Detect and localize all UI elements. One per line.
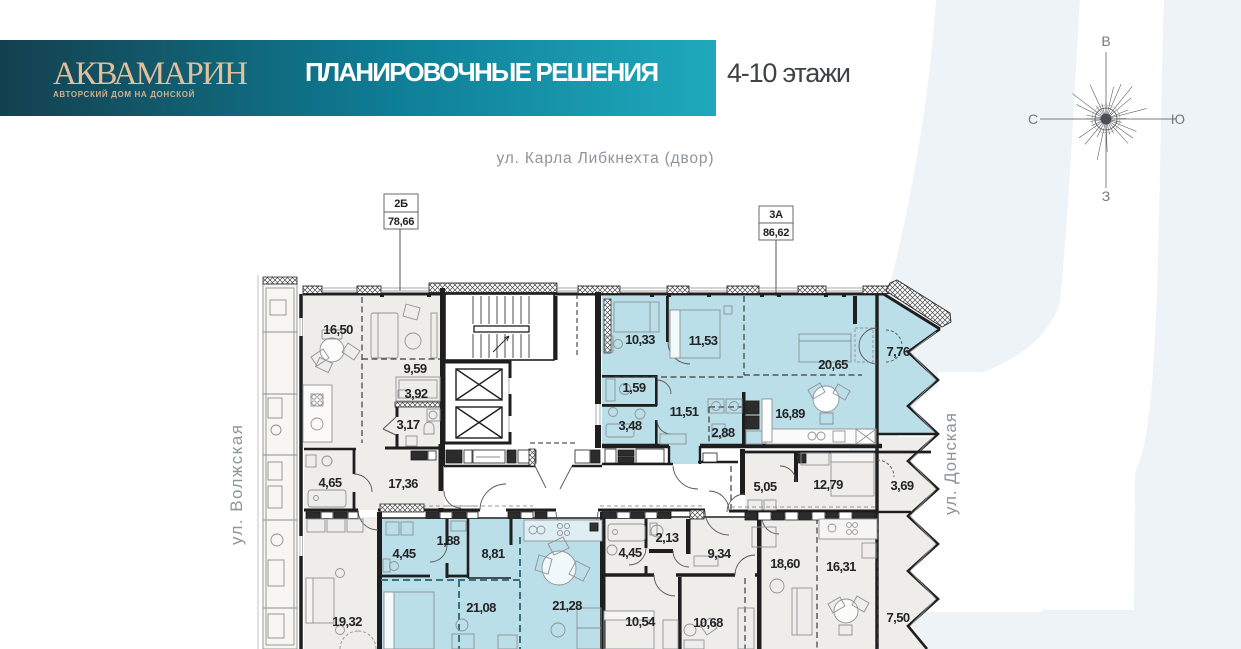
svg-text:3А: 3А [769, 209, 783, 221]
svg-text:2,88: 2,88 [712, 425, 735, 440]
svg-text:Ю: Ю [1171, 111, 1185, 127]
svg-text:АКВАМАРИН: АКВАМАРИН [53, 56, 250, 92]
svg-text:19,32: 19,32 [332, 614, 362, 629]
svg-text:10,68: 10,68 [693, 615, 723, 630]
svg-text:С: С [1028, 111, 1038, 127]
svg-text:20,65: 20,65 [818, 357, 848, 372]
svg-text:3,92: 3,92 [405, 386, 428, 401]
svg-text:16,31: 16,31 [826, 559, 856, 574]
svg-text:21,08: 21,08 [466, 600, 496, 615]
svg-text:21,28: 21,28 [552, 598, 582, 613]
svg-text:З: З [1102, 188, 1110, 204]
svg-text:ул. Донская: ул. Донская [941, 413, 960, 515]
svg-text:АВТОРСКИЙ ДОМ НА ДОНСКОЙ: АВТОРСКИЙ ДОМ НА ДОНСКОЙ [53, 90, 196, 99]
svg-text:17,36: 17,36 [388, 476, 418, 491]
svg-text:9,59: 9,59 [404, 361, 427, 376]
svg-text:3,48: 3,48 [619, 418, 642, 433]
svg-text:В: В [1101, 33, 1110, 49]
svg-text:3,69: 3,69 [891, 478, 914, 493]
svg-text:8,81: 8,81 [482, 546, 505, 561]
svg-text:11,53: 11,53 [689, 333, 718, 348]
svg-text:1,59: 1,59 [623, 380, 646, 395]
svg-text:10,33: 10,33 [625, 332, 655, 347]
svg-text:12,79: 12,79 [813, 477, 843, 492]
svg-text:5,05: 5,05 [754, 479, 777, 494]
svg-text:ПЛАНИРОВОЧНЫЕ РЕШЕНИЯ: ПЛАНИРОВОЧНЫЕ РЕШЕНИЯ [305, 57, 659, 87]
svg-text:3,17: 3,17 [397, 417, 420, 432]
svg-text:18,60: 18,60 [770, 556, 800, 571]
svg-text:7,50: 7,50 [887, 610, 910, 625]
svg-text:ул. Карла Либкнехта (двор): ул. Карла Либкнехта (двор) [497, 150, 714, 167]
svg-text:7,76: 7,76 [887, 344, 910, 359]
svg-text:9,34: 9,34 [708, 546, 732, 561]
svg-text:2,13: 2,13 [656, 530, 679, 545]
svg-text:ул. Волжская: ул. Волжская [227, 425, 246, 545]
svg-text:78,66: 78,66 [388, 216, 414, 228]
svg-text:2Б: 2Б [394, 198, 408, 210]
svg-text:4,45: 4,45 [619, 545, 642, 560]
svg-text:86,62: 86,62 [763, 227, 789, 239]
svg-text:1,88: 1,88 [437, 533, 460, 548]
svg-text:4,65: 4,65 [319, 475, 342, 490]
svg-text:4-10 этажи: 4-10 этажи [727, 58, 851, 88]
svg-text:16,50: 16,50 [323, 322, 353, 337]
svg-text:4,45: 4,45 [393, 546, 416, 561]
svg-text:10,54: 10,54 [625, 614, 656, 629]
svg-text:11,51: 11,51 [670, 404, 699, 419]
svg-text:16,89: 16,89 [775, 406, 805, 421]
